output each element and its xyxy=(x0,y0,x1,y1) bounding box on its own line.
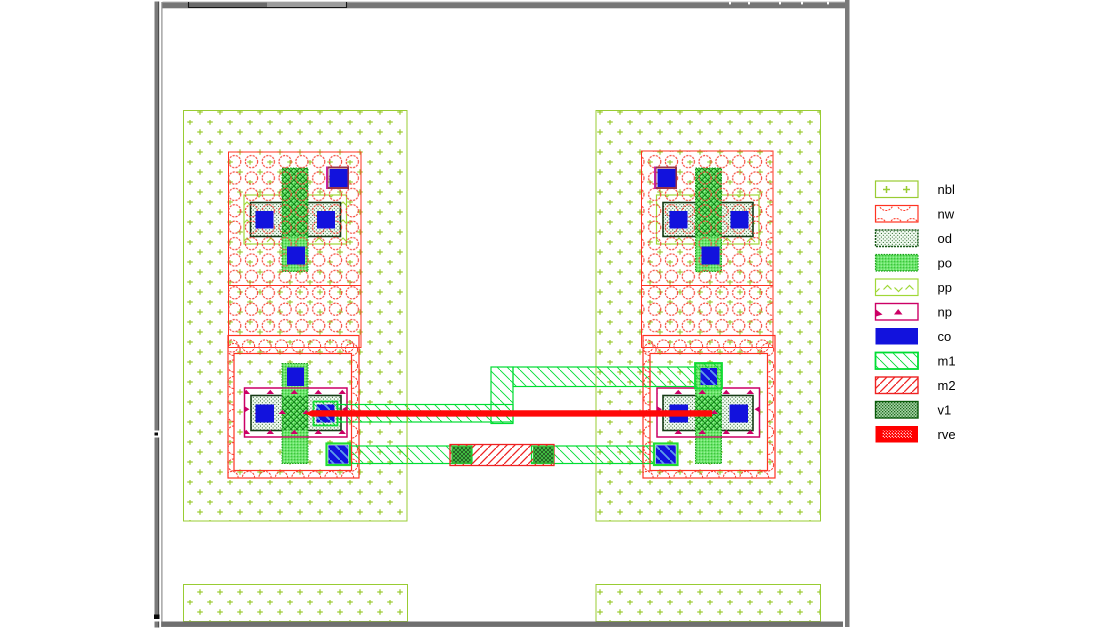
svg-text:np: np xyxy=(938,305,952,320)
svg-text:nbl: nbl xyxy=(938,182,955,197)
svg-text:po: po xyxy=(938,256,952,271)
svg-text:od: od xyxy=(938,231,952,246)
svg-text:v1: v1 xyxy=(938,403,952,418)
svg-text:pp: pp xyxy=(938,280,952,295)
svg-text:nw: nw xyxy=(938,207,955,222)
svg-text:rve: rve xyxy=(938,427,956,442)
svg-text:m1: m1 xyxy=(938,354,956,369)
svg-text:m2: m2 xyxy=(938,378,956,393)
svg-text:co: co xyxy=(938,329,952,344)
